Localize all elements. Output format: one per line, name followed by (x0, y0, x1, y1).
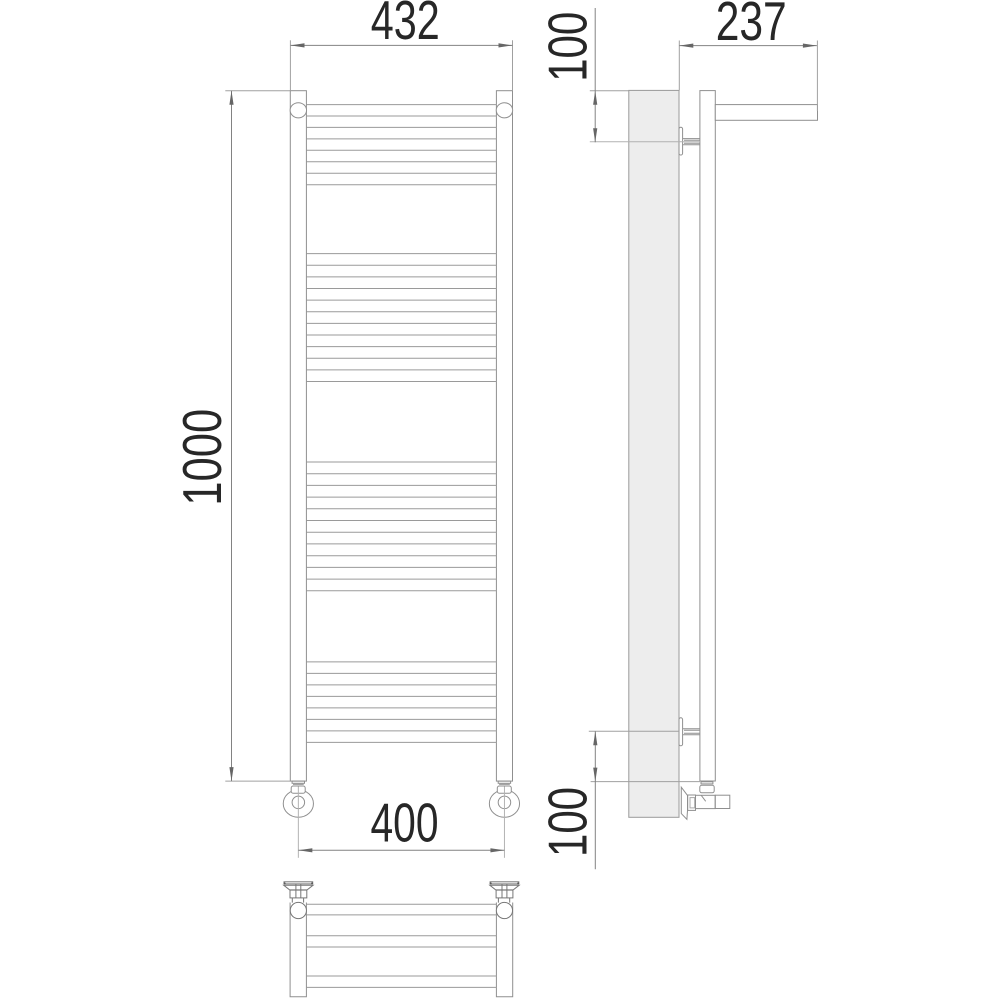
svg-text:237: 237 (716, 0, 787, 52)
svg-text:1000: 1000 (171, 409, 233, 506)
svg-text:400: 400 (371, 792, 439, 854)
svg-text:100: 100 (537, 787, 599, 857)
svg-text:432: 432 (371, 0, 440, 51)
svg-text:100: 100 (536, 12, 598, 82)
